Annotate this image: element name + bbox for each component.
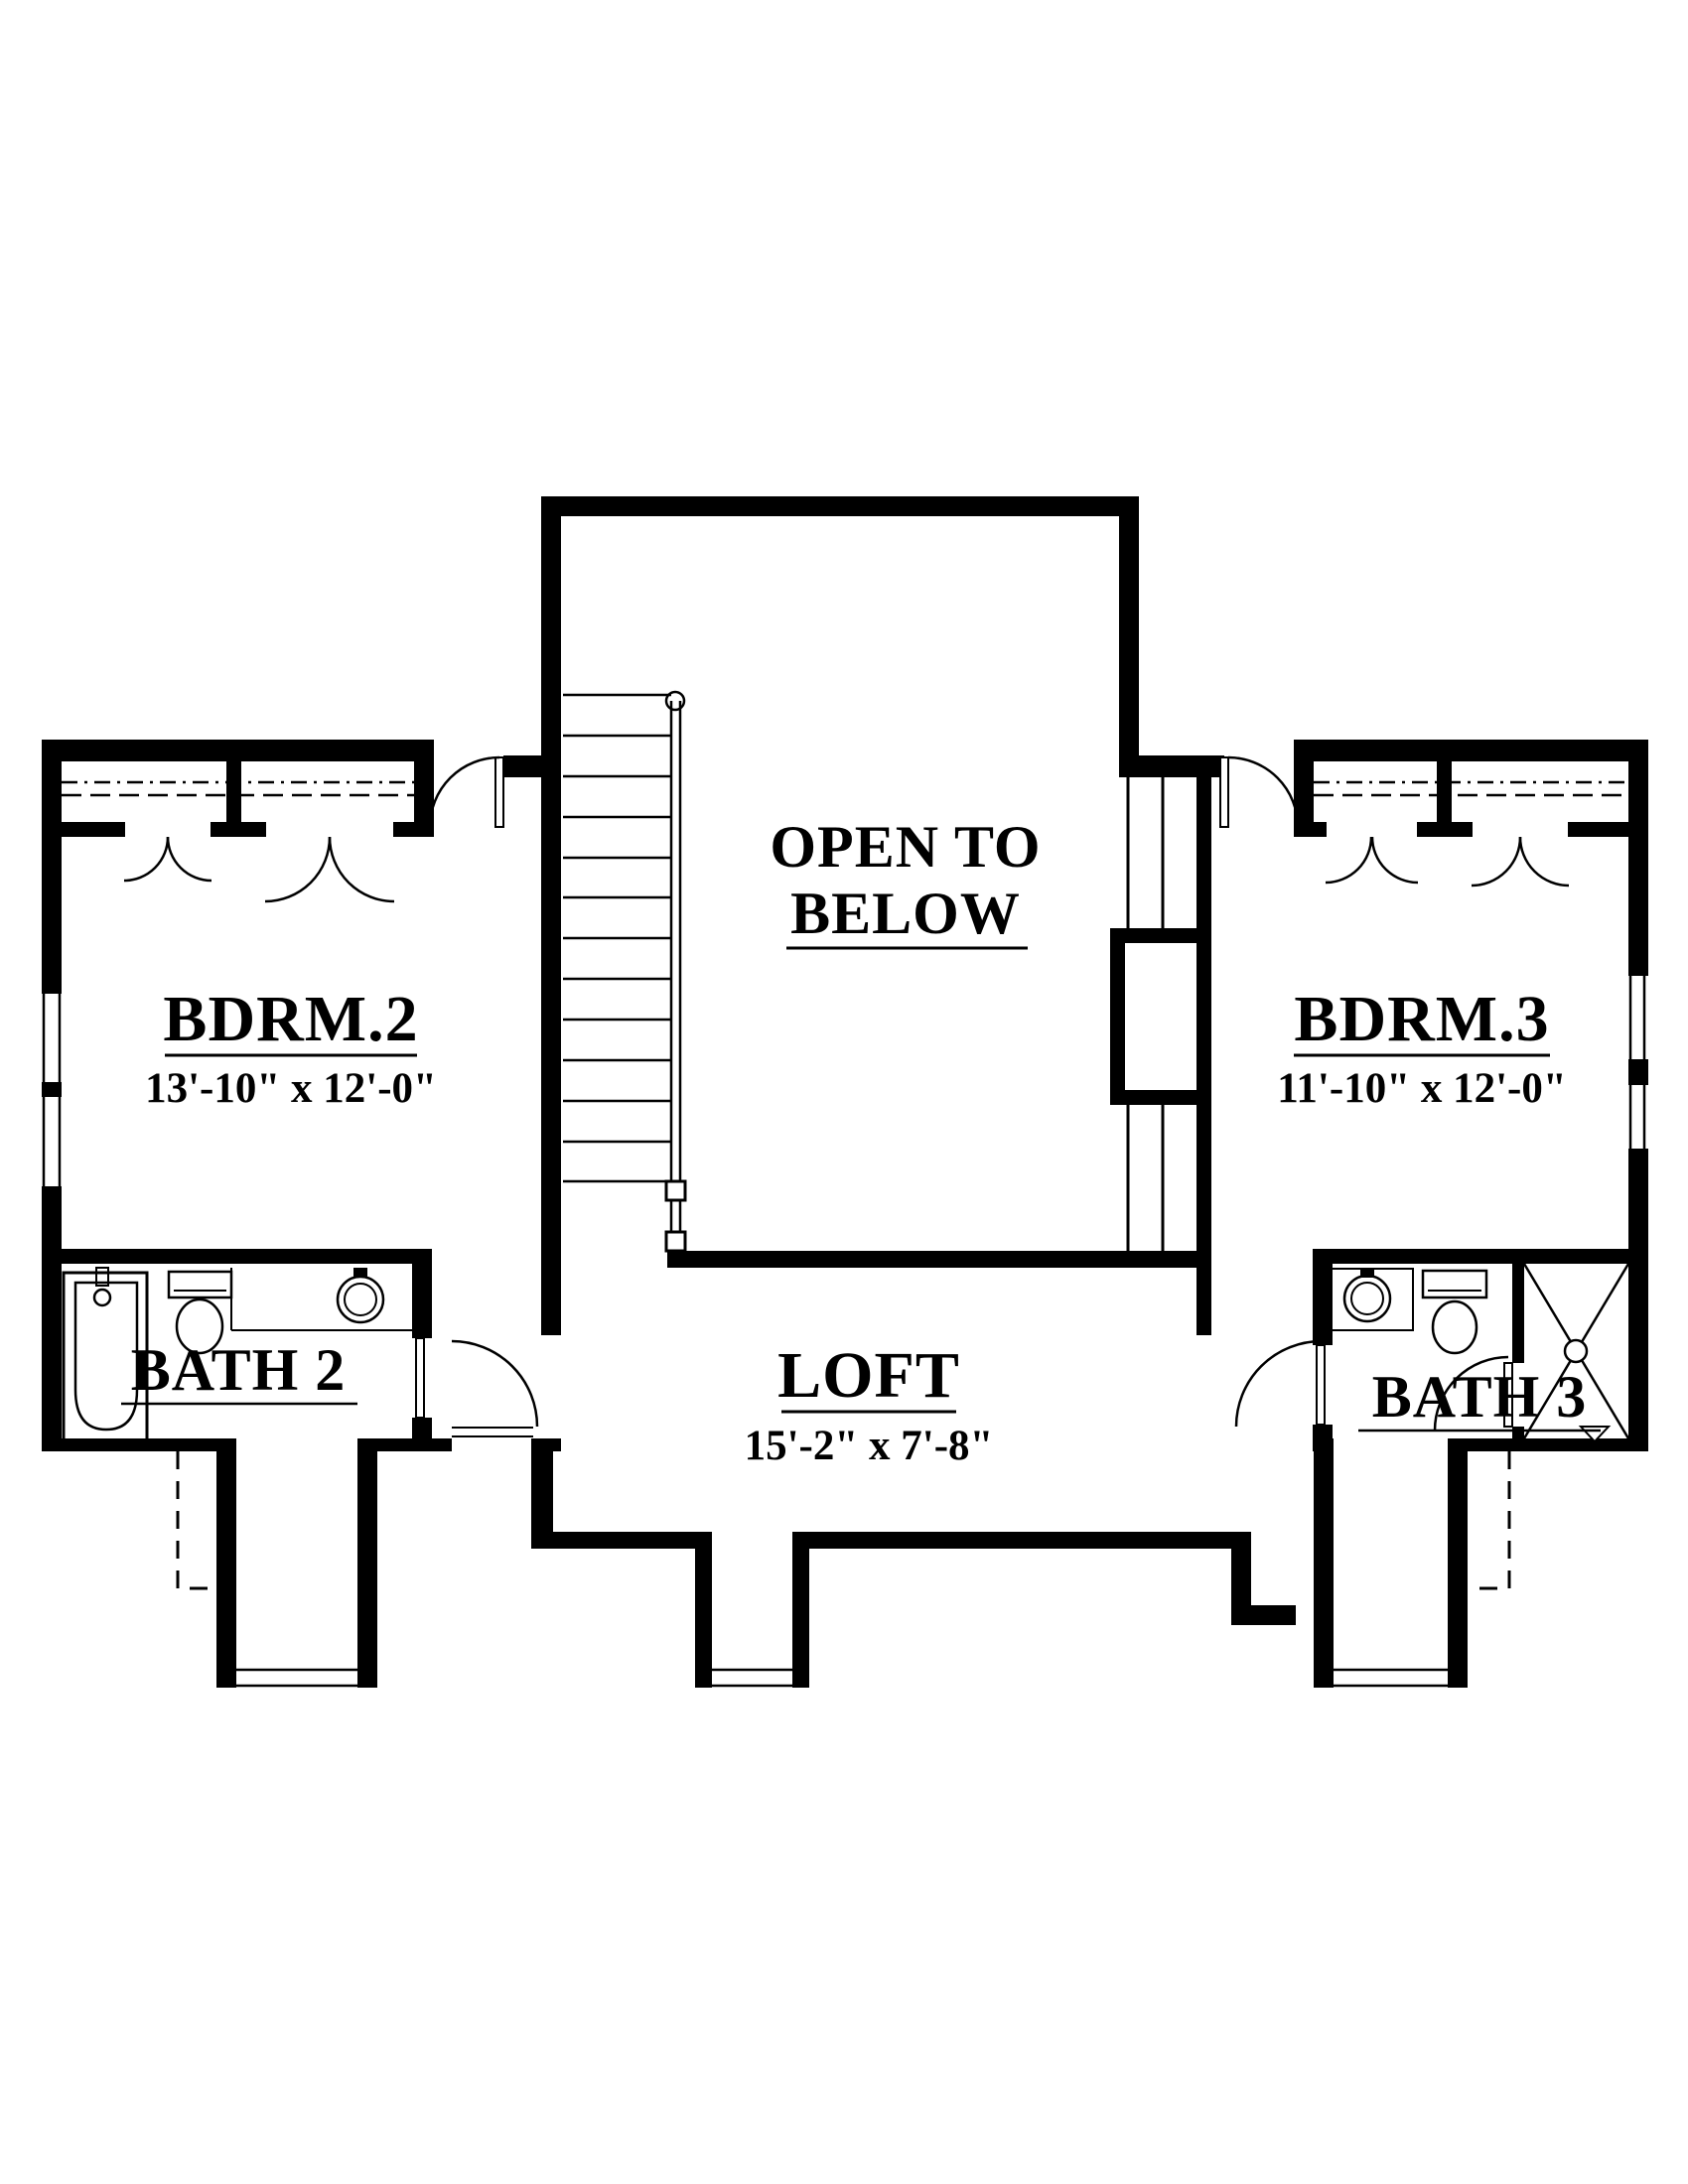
floor-plan-drawing: BDRM.2 13'-10" x 12'-0" BDRM.3 11'-10" x… bbox=[0, 0, 1688, 2184]
dormer-window-right bbox=[1334, 1670, 1448, 1686]
dormer-window-center bbox=[712, 1670, 792, 1686]
room-label-bath2: BATH 2 bbox=[131, 1337, 347, 1403]
window-bdrm3-right-2 bbox=[1626, 1085, 1650, 1149]
room-label-open-to-below-1: OPEN TO bbox=[770, 814, 1041, 880]
knee-wall-dashed-lines bbox=[178, 1451, 1509, 1588]
room-label-loft: LOFT bbox=[777, 1339, 960, 1412]
chimney-chase bbox=[1110, 777, 1209, 1251]
room-dims-loft: 15'-2" x 7'-8" bbox=[745, 1423, 994, 1469]
floor-plan-page: BDRM.2 13'-10" x 12'-0" BDRM.3 11'-10" x… bbox=[0, 0, 1688, 2184]
room-label-bath3: BATH 3 bbox=[1372, 1364, 1588, 1430]
sink-icon-bath3 bbox=[1328, 1268, 1413, 1330]
window-bdrm2-left-1 bbox=[40, 994, 64, 1082]
room-label-bdrm3: BDRM.3 bbox=[1294, 983, 1549, 1055]
bdrm3-entry-door bbox=[1220, 757, 1298, 827]
bath3-door bbox=[1236, 1341, 1325, 1427]
bdrm2-entry-door bbox=[430, 757, 503, 827]
sink-icon-bath2 bbox=[231, 1268, 412, 1330]
room-label-bdrm2: BDRM.2 bbox=[163, 983, 418, 1055]
stairs bbox=[563, 695, 671, 1181]
room-dims-bdrm2: 13'-10" x 12'-0" bbox=[145, 1065, 437, 1112]
closet-shelf-lines bbox=[62, 782, 1628, 795]
dormer-window-left bbox=[236, 1670, 357, 1686]
room-dims-bdrm3: 11'-10" x 12'-0" bbox=[1277, 1065, 1566, 1112]
window-bdrm2-left-2 bbox=[40, 1097, 64, 1186]
bath2-door bbox=[416, 1338, 537, 1436]
room-label-open-to-below-2: BELOW bbox=[790, 881, 1021, 946]
window-bdrm3-right-1 bbox=[1626, 976, 1650, 1059]
toilet-icon-bath3 bbox=[1423, 1271, 1486, 1353]
